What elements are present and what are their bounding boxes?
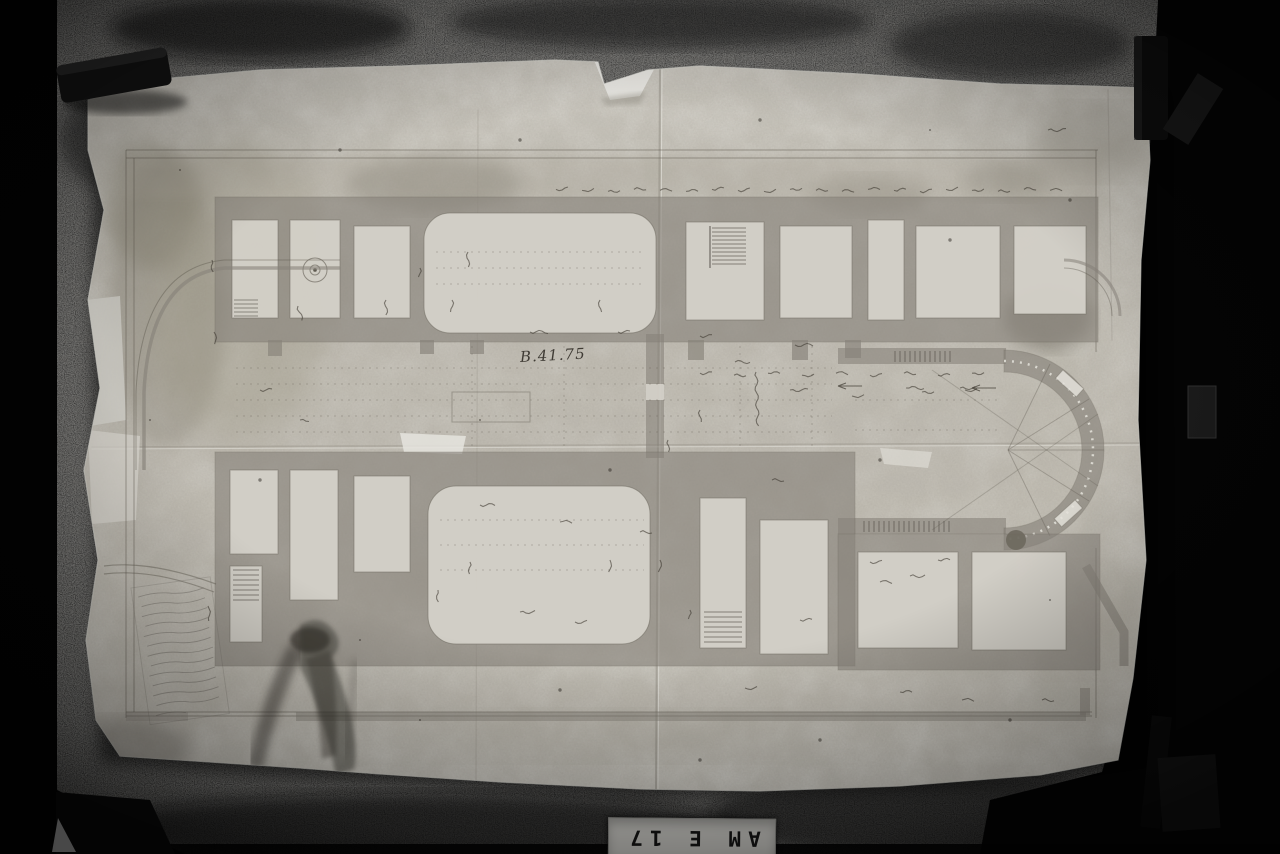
south-wall-left [126, 712, 188, 721]
black-left-bar [0, 0, 57, 854]
south-boundary-wall [296, 712, 1086, 721]
archive-label-text: AM E 17 [623, 825, 761, 850]
dimension-annotation: B.41.75 [518, 345, 586, 366]
photo-scene: B.41.75 [0, 0, 1280, 854]
southeast-block [838, 530, 1124, 670]
clip-right-middle [1188, 386, 1216, 438]
archival-photo: B.41.75 AM E 17 [0, 0, 1280, 854]
central-cross-door [646, 384, 664, 400]
south-wall-hook [1080, 688, 1090, 715]
archive-label-plate: AM E 17 [608, 817, 776, 854]
column-drum [1006, 530, 1026, 550]
